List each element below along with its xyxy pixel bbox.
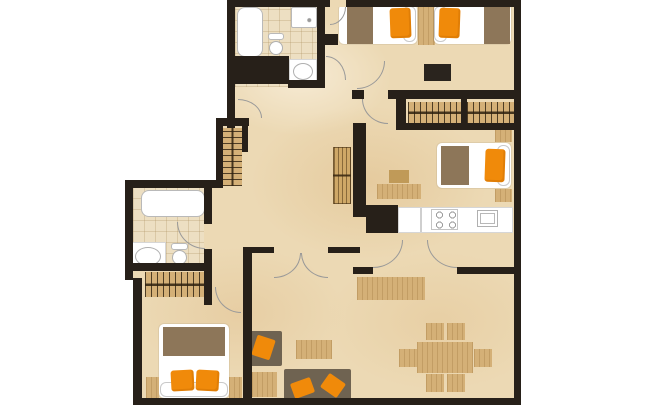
wall-bath-left-right-2 xyxy=(204,249,212,305)
wardrobe-hangers-right-1 xyxy=(408,102,462,123)
wall-bottom xyxy=(135,398,521,405)
wall-center-vertical xyxy=(353,123,366,217)
outside-mask-top-left xyxy=(0,0,227,118)
wall-right xyxy=(514,0,521,405)
nightstand-mr-bottom xyxy=(495,189,512,202)
dining-chair-top-1 xyxy=(426,323,444,340)
wall-bath-top-right xyxy=(317,7,325,88)
bathtub-top xyxy=(237,7,263,57)
dining-chair-top-2 xyxy=(447,323,465,340)
twin-bed-2-blanket xyxy=(484,4,510,44)
shower-tray xyxy=(291,7,317,28)
wall-bath-top-block xyxy=(227,56,289,84)
wall-corridor-stub xyxy=(325,34,338,45)
dining-chair-bottom-2 xyxy=(447,374,465,392)
nightstand-center-top xyxy=(418,3,435,45)
ottoman xyxy=(252,372,277,397)
single-bed-pillow xyxy=(484,149,505,183)
wall-wardrobe-divider xyxy=(461,99,467,125)
stove-burners xyxy=(431,209,458,230)
shelf-louver xyxy=(333,147,351,204)
dining-chair-right xyxy=(474,349,492,367)
entry-opening xyxy=(330,0,346,7)
twin-bed-1-pillow xyxy=(389,8,411,39)
toilet-bowl-top xyxy=(269,41,283,55)
kitchen-counter-divider xyxy=(420,208,422,232)
wall-bedroom-bl-right xyxy=(243,247,252,405)
closet-hangers-hall xyxy=(223,128,242,186)
twin-bed-1-blanket xyxy=(347,4,373,44)
dining-chair-left xyxy=(399,349,417,367)
sink-basin-top xyxy=(293,63,313,80)
wall-sink-nook-bottom xyxy=(288,80,325,88)
tv-dresser xyxy=(424,64,451,81)
bathtub-left xyxy=(141,190,205,217)
coffee-table xyxy=(296,340,332,359)
wall-top xyxy=(227,0,521,7)
desk-stool xyxy=(389,170,409,183)
kitchen-sink xyxy=(477,210,498,227)
wall-bath-left-bottom xyxy=(130,263,208,271)
wall-mid-horizontal-1 xyxy=(352,90,364,99)
floor-plan-canvas xyxy=(0,0,645,405)
wall-kitchen-bottom-right xyxy=(457,267,521,274)
wall-mid-horizontal-2 xyxy=(388,90,521,99)
twin-bed-2-pillow xyxy=(438,8,460,39)
wall-closet-right xyxy=(242,118,248,152)
wall-kitchen-bottom-left xyxy=(353,267,373,274)
nightstand-bl-right xyxy=(229,377,242,398)
outside-mask-mid-left xyxy=(0,118,216,180)
wardrobe-hangers-left xyxy=(145,272,205,297)
wall-kitchen-chunk xyxy=(366,205,398,233)
nightstand-mr-top xyxy=(495,129,512,142)
outside-mask-left xyxy=(0,180,128,280)
wall-hall-bottom-right xyxy=(328,247,360,253)
wall-left-lower xyxy=(133,278,142,405)
dining-chair-bottom-1 xyxy=(426,374,444,392)
wall-bath-left-right-1 xyxy=(204,180,212,224)
wall-hall-bottom-left xyxy=(243,247,274,253)
wardrobe-hangers-right-2 xyxy=(467,102,518,123)
wall-closet-left xyxy=(216,126,223,188)
double-bed-pillow-right xyxy=(195,369,219,391)
nightstand-bl-left xyxy=(146,377,159,398)
dining-table xyxy=(417,342,473,373)
wall-bath-top-left xyxy=(227,0,235,62)
toilet-tank-left xyxy=(171,243,188,250)
double-bed-pillow-left xyxy=(170,369,194,391)
desk xyxy=(377,184,421,199)
sideboard xyxy=(357,277,425,300)
double-bed-blanket xyxy=(163,327,225,356)
wall-wardrobe-bottom xyxy=(396,123,521,130)
single-bed-blanket xyxy=(441,146,469,185)
outside-mask-bottom-left xyxy=(0,278,133,405)
toilet-tank-top xyxy=(268,33,284,40)
